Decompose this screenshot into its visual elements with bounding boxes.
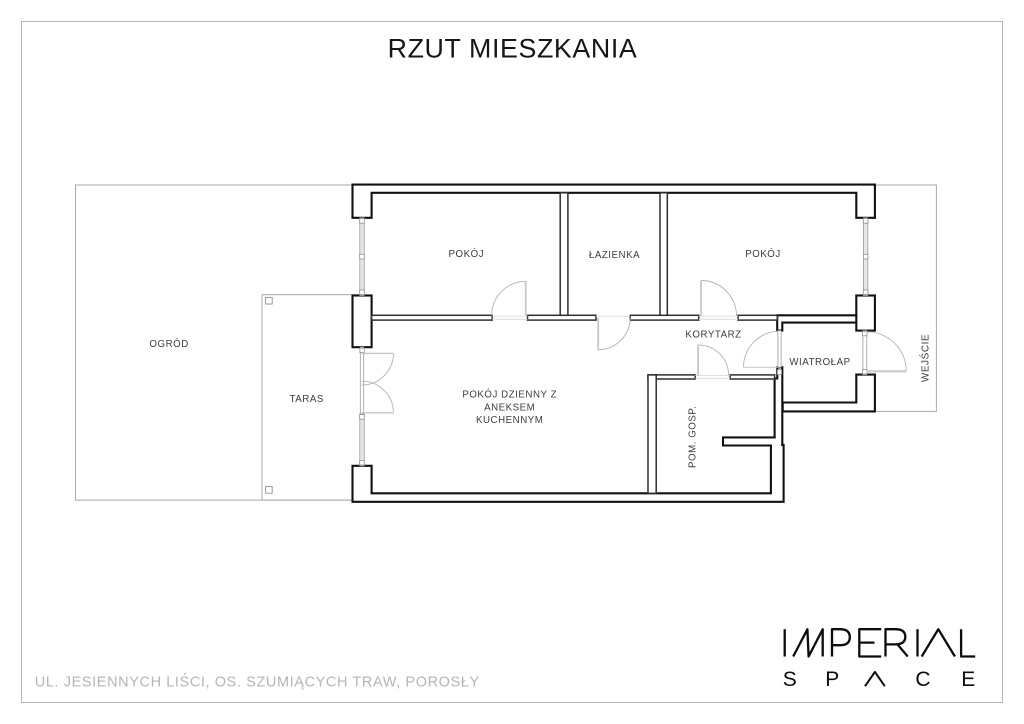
svg-text:E: E [961,668,975,691]
svg-text:POKÓJ: POKÓJ [449,249,485,260]
svg-text:ŁAZIENKA: ŁAZIENKA [589,250,640,261]
svg-text:OGRÓD: OGRÓD [149,339,188,350]
svg-text:UL. JESIENNYCH LIŚCI, OS. SZUM: UL. JESIENNYCH LIŚCI, OS. SZUMIĄCYCH TRA… [35,673,480,691]
svg-text:TARAS: TARAS [290,394,324,405]
svg-text:S: S [783,668,797,691]
svg-text:POM. GOSP.: POM. GOSP. [688,406,699,468]
svg-text:POKÓJ DZIENNY Z: POKÓJ DZIENNY Z [462,390,557,401]
svg-text:P: P [825,668,839,691]
svg-text:POKÓJ: POKÓJ [745,249,781,260]
svg-text:KORYTARZ: KORYTARZ [685,330,741,341]
svg-text:C: C [915,668,930,691]
svg-text:WIATROŁAP: WIATROŁAP [789,357,850,368]
svg-text:RZUT MIESZKANIA: RZUT MIESZKANIA [388,34,638,64]
svg-text:WEJŚCIE: WEJŚCIE [918,334,931,382]
svg-text:KUCHENNYM: KUCHENNYM [476,415,543,426]
svg-text:ANEKSEM: ANEKSEM [484,402,535,413]
